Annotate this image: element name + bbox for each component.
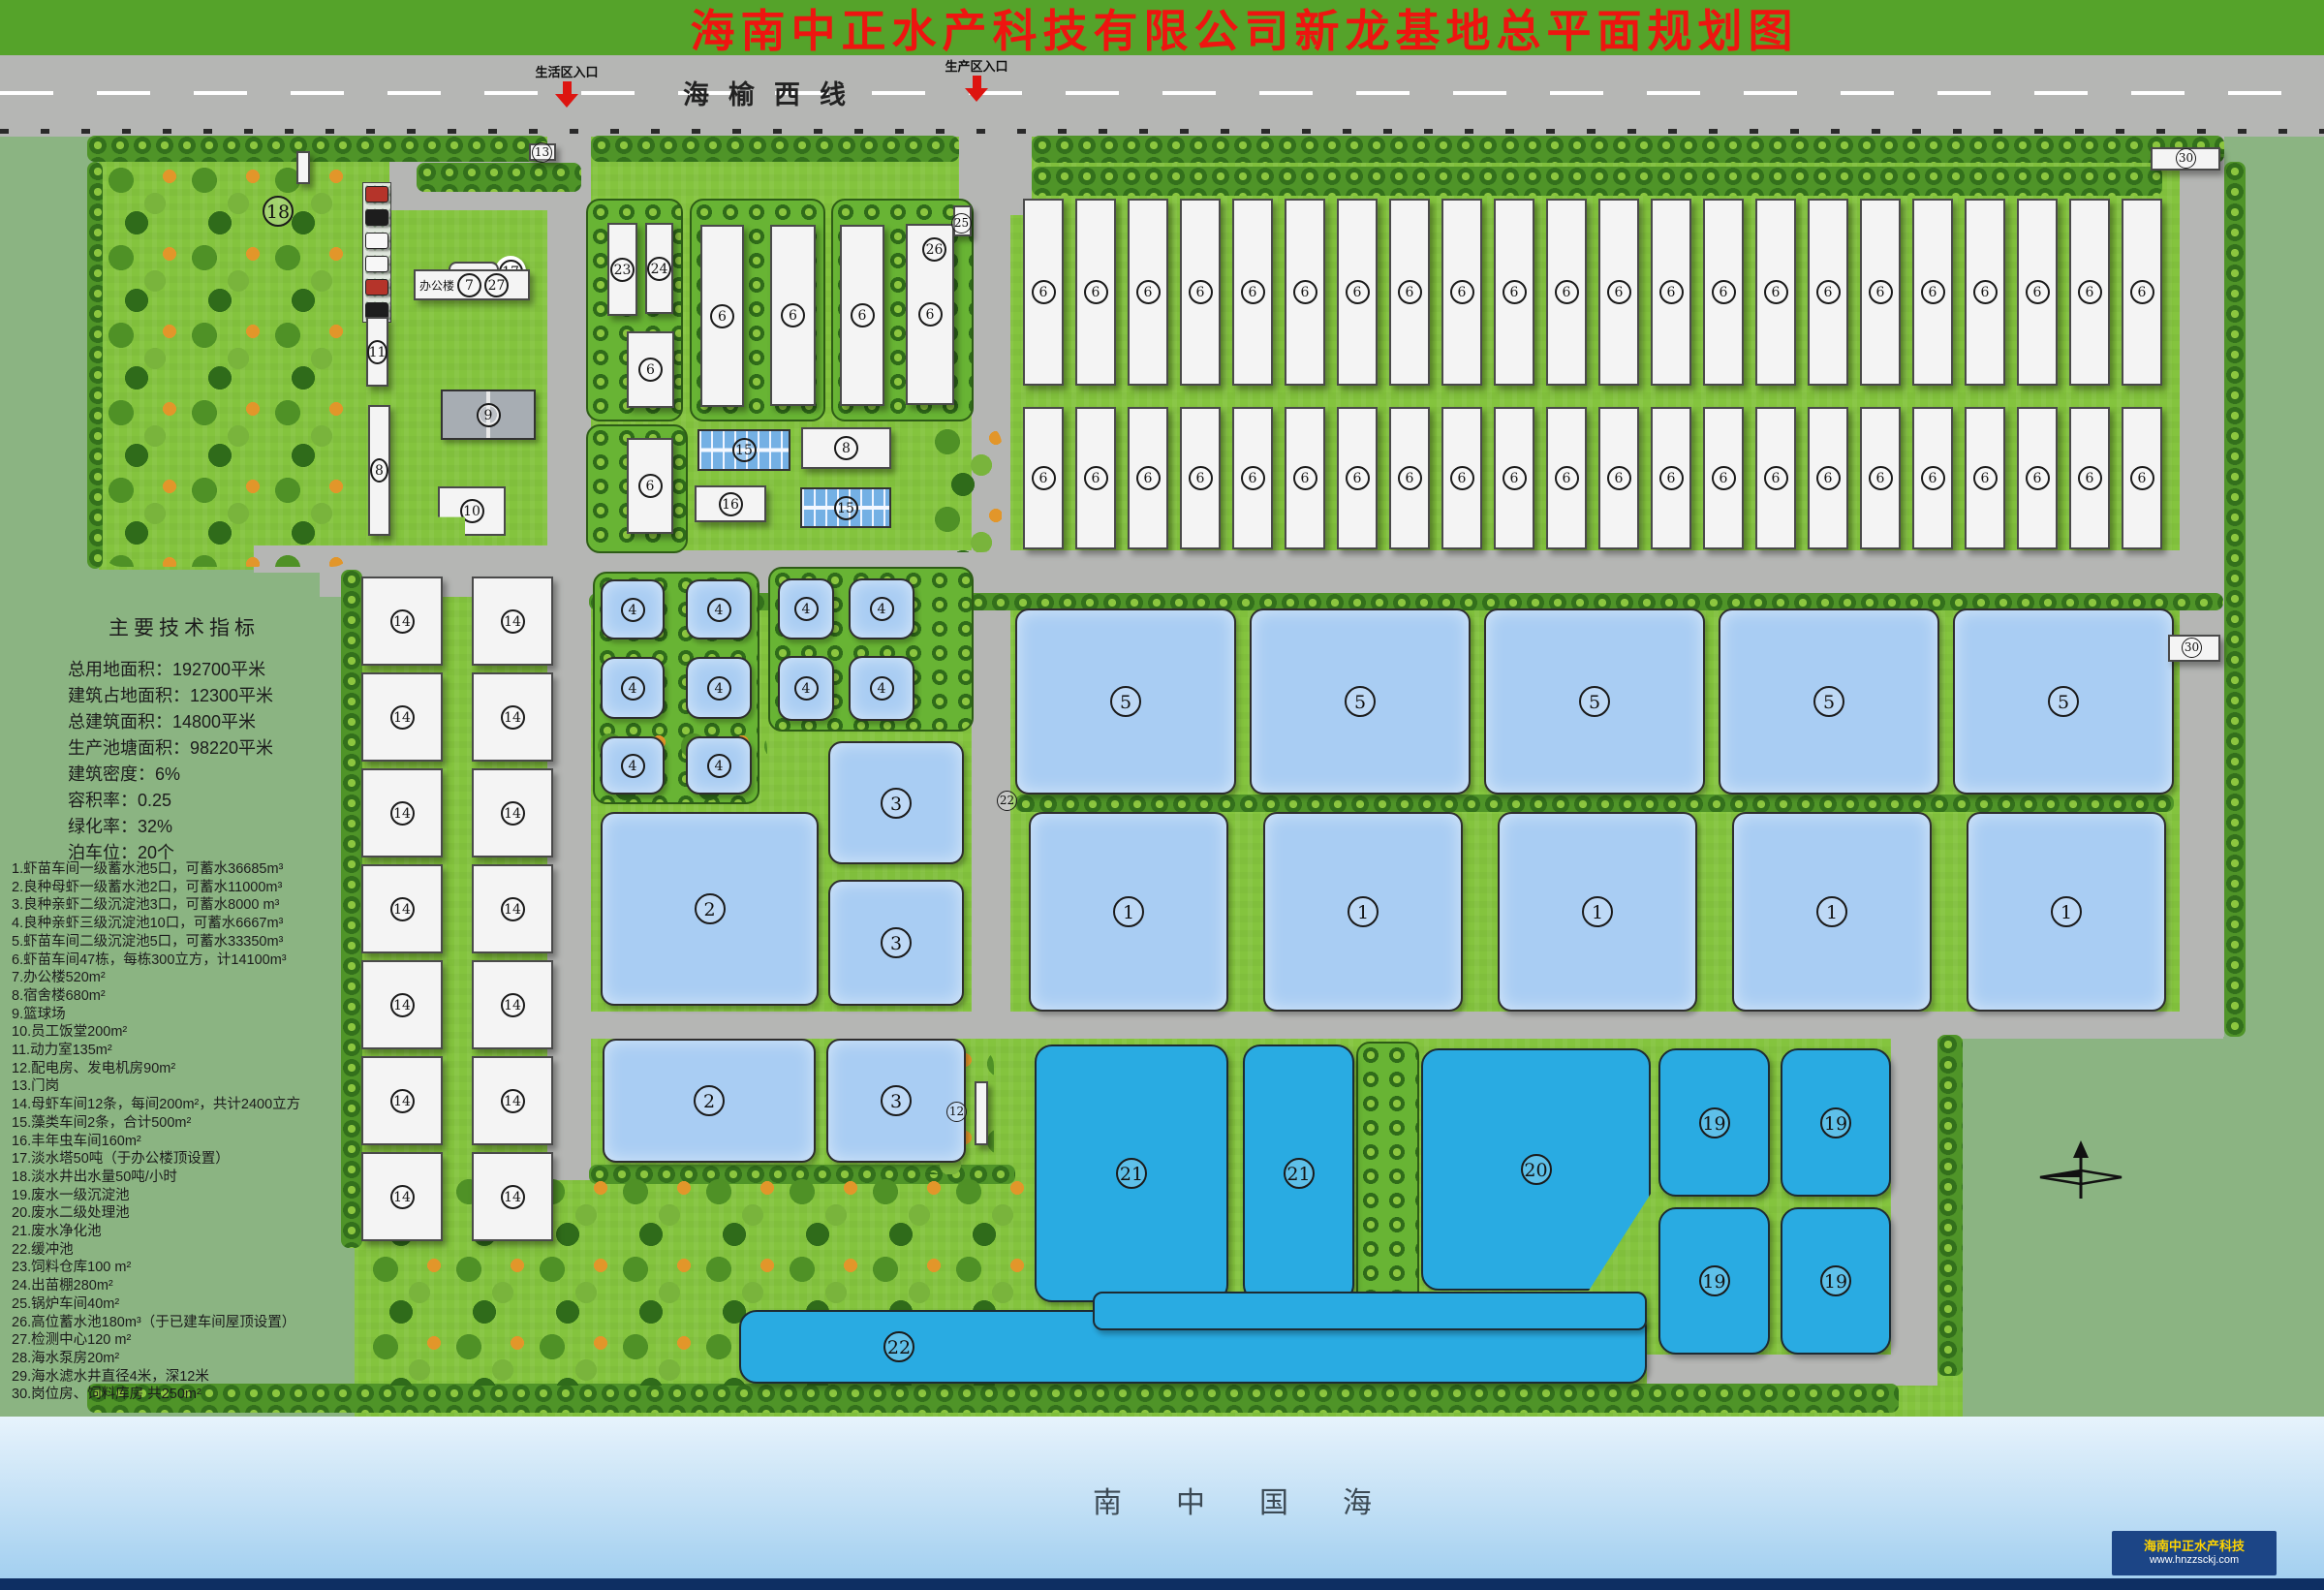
pond-5: 5: [1719, 608, 1939, 795]
shrimp-workshop-6-row2: 6: [1703, 407, 1744, 549]
list-item: 19.废水一级沉淀池: [12, 1187, 353, 1205]
south-boundary-trees: [87, 1384, 1899, 1413]
palm-strip: [928, 424, 1002, 552]
circled-label-8: 8: [370, 458, 388, 483]
top-hedge-west: [87, 136, 547, 162]
circled-label-6: 6: [851, 303, 875, 327]
pond-4: 4: [601, 579, 665, 639]
shrimp-workshop-6-row1: 6: [1598, 199, 1639, 386]
circled-label-6: 6: [1973, 280, 1998, 304]
workshop-6: 6: [700, 225, 744, 407]
pond-3: 3: [826, 1039, 966, 1163]
circled-label-6: 6: [1764, 466, 1788, 490]
circled-label-6: 6: [1921, 466, 1945, 490]
shrimp-workshop-6-row2: 6: [1389, 407, 1430, 549]
shrimp-workshop-6-row1: 6: [2017, 199, 2058, 386]
compass-icon: [2032, 1138, 2129, 1231]
circled-label-21: 21: [1284, 1158, 1315, 1189]
pond-3: 3: [828, 880, 964, 1006]
pond-3: 3: [828, 741, 964, 864]
circled-label-6: 6: [1398, 466, 1422, 490]
workshop-6: 6: [627, 331, 674, 408]
circled-label-13: 13: [532, 142, 552, 163]
circled-label-15: 15: [834, 496, 858, 520]
circled-label-14: 14: [501, 1089, 525, 1113]
circled-label-3: 3: [881, 1085, 912, 1116]
circled-label-2: 2: [695, 893, 726, 924]
southeast-bottom-road: [1647, 1355, 1937, 1386]
circled-label-4: 4: [794, 597, 819, 621]
west-boundary-trees: [87, 162, 103, 569]
circled-label-6: 6: [1712, 280, 1736, 304]
list-item: 容积率：0.25: [68, 788, 339, 814]
pond-2: 2: [601, 812, 819, 1006]
circled-label-8: 8: [834, 436, 858, 460]
marker-25: 25: [951, 213, 972, 234]
workshop-6: 6: [770, 225, 816, 406]
pond-5: 5: [1953, 608, 2174, 795]
production-entrance-label: 生产区入口: [918, 56, 1035, 75]
pond-2: 2: [603, 1039, 816, 1163]
circled-label-6: 6: [1241, 280, 1265, 304]
south-east-west-road: [589, 1012, 2223, 1039]
broodstock-workshop-14: 14: [472, 672, 553, 762]
circled-label-14: 14: [390, 1185, 415, 1209]
circled-label-6: 6: [1084, 466, 1108, 490]
dormitory-8: 8: [368, 405, 390, 536]
living-entrance-label: 生活区入口: [509, 62, 625, 80]
shrimp-workshop-6-row2: 6: [1075, 407, 1116, 549]
pond-4: 4: [849, 656, 914, 721]
shrimp-workshop-6-row2: 6: [1285, 407, 1325, 549]
list-item: 28.海水泵房20m²: [12, 1350, 353, 1368]
central-vertical-road: [972, 211, 1010, 1037]
broodstock-workshop-14: 14: [361, 672, 443, 762]
circled-label-6: 6: [1084, 280, 1108, 304]
southeast-tree-col: [1937, 1035, 1963, 1376]
list-item: 6.虾苗车间47栋，每栋300立方，计14100m³: [12, 951, 353, 970]
list-item: 17.淡水塔50吨（于办公楼顶设置）: [12, 1150, 353, 1169]
southeast-vertical-road: [1891, 1035, 1937, 1376]
feed-store-23: 23: [607, 223, 637, 316]
circled-label-1: 1: [1113, 896, 1144, 927]
circled-label-2: 2: [694, 1085, 725, 1116]
shrimp-workshop-6-row1: 6: [1285, 199, 1325, 386]
marker-30-east: 30: [2182, 638, 2202, 658]
circled-label-14: 14: [501, 897, 525, 921]
office-building-7: 办公楼 7 27: [414, 262, 532, 302]
tree-row-living: [417, 163, 581, 192]
right-vertical-road: [2180, 136, 2224, 1037]
circled-label-4: 4: [870, 676, 894, 701]
arrow-down-icon: [965, 88, 988, 102]
circled-label-15: 15: [732, 438, 757, 462]
list-item: 1.虾苗车间一级蓄水池5口，可蓄水36685m³: [12, 860, 353, 879]
pond-19: 19: [1658, 1048, 1770, 1197]
workshop-6: 6: [840, 225, 884, 406]
circled-label-4: 4: [621, 676, 645, 701]
pond-4: 4: [601, 657, 665, 719]
shrimp-workshop-6-row2: 6: [2122, 407, 2162, 549]
circled-label-6: 6: [1869, 280, 1893, 304]
list-item: 4.良种亲虾三级沉淀池10口，可蓄水6667m³: [12, 915, 353, 933]
site-plan: 海南中正水产科技有限公司新龙基地总平面规划图 44444444443322355…: [0, 0, 2324, 1590]
sea-bottom-bar: [0, 1578, 2324, 1590]
list-item: 24.出苗棚280m²: [12, 1277, 353, 1295]
list-item: 16.丰年虫车间160m²: [12, 1133, 353, 1151]
shrimp-workshop-6-row1: 6: [1808, 199, 1848, 386]
list-item: 10.员工饭堂200m²: [12, 1023, 353, 1042]
circled-label-6: 6: [1189, 466, 1213, 490]
shrimp-workshop-6-row1: 6: [2122, 199, 2162, 386]
dormitory-8b: 8: [801, 427, 891, 469]
circled-label-14: 14: [390, 897, 415, 921]
car-icon: [365, 256, 388, 272]
circled-label-6: 6: [918, 302, 943, 327]
list-item: 2.良种母虾一级蓄水池2口，可蓄水11000m³: [12, 879, 353, 897]
list-item: 生产池塘面积：98220平米: [68, 735, 339, 762]
shrimp-workshop-6-row2: 6: [1912, 407, 1953, 549]
broodstock-workshop-14: 14: [472, 960, 553, 1049]
pond-1: 1: [1732, 812, 1932, 1012]
circled-label-6: 6: [2130, 466, 2154, 490]
shrimp-workshop-6-row1: 6: [1075, 199, 1116, 386]
car-icon: [365, 233, 388, 249]
watermark-company: 海南中正水产科技: [2112, 1536, 2277, 1554]
office-body: 办公楼 7 27: [414, 269, 530, 300]
shrimp-workshop-6-row1: 6: [1912, 199, 1953, 386]
circled-label-5: 5: [1813, 686, 1844, 717]
shrimp-workshop-6-row2: 6: [1023, 407, 1064, 549]
highway-centerline: [0, 91, 2324, 95]
shrimp-workshop-6-row2: 6: [1232, 407, 1273, 549]
list-item: 8.宿舍楼680m²: [12, 987, 353, 1006]
circled-label-4: 4: [621, 598, 645, 622]
circled-label-5: 5: [1110, 686, 1141, 717]
circled-label-4: 4: [707, 754, 731, 778]
circled-label-19: 19: [1820, 1107, 1851, 1138]
sea-name: 南中国海: [1093, 1479, 1426, 1521]
broodstock-workshop-14: 14: [361, 577, 443, 666]
living-entry-road: [547, 136, 591, 1180]
circled-label-14: 14: [390, 1089, 415, 1113]
circled-label-18: 18: [263, 196, 294, 227]
pond-5: 5: [1015, 608, 1236, 795]
generator-12: [975, 1081, 988, 1145]
shrimp-workshop-6-row2: 6: [1546, 407, 1587, 549]
circled-label-3: 3: [881, 927, 912, 958]
circled-label-6: 6: [781, 303, 805, 327]
circled-label-1: 1: [1816, 896, 1847, 927]
circled-label-6: 6: [1659, 466, 1684, 490]
broodstock-workshop-14: 14: [472, 577, 553, 666]
shrimp-workshop-6-row1: 6: [1755, 199, 1796, 386]
shrimp-workshop-6-row1: 6: [1703, 199, 1744, 386]
shrimp-workshop-6-row1: 6: [1023, 199, 1064, 386]
circled-label-22: 22: [883, 1331, 914, 1362]
pond-1: 1: [1263, 812, 1463, 1012]
circled-label-6: 6: [1450, 466, 1474, 490]
shrimp-workshop-6-row2: 6: [2069, 407, 2110, 549]
circled-label-4: 4: [707, 676, 731, 701]
brine-shrimp-16: 16: [695, 485, 766, 522]
shrimp-workshop-6-row1: 6: [2069, 199, 2110, 386]
tree-row-east: [1032, 167, 2162, 196]
marker-18: 18: [262, 195, 294, 228]
shrimp-workshop-6-row2: 6: [1755, 407, 1796, 549]
circled-label-20: 20: [1521, 1154, 1552, 1185]
circled-label-6: 6: [638, 358, 663, 382]
broodstock-workshop-14: 14: [361, 864, 443, 953]
circled-label-19: 19: [1820, 1265, 1851, 1296]
circled-label-6: 6: [1032, 466, 1056, 490]
circled-label-1: 1: [2051, 896, 2082, 927]
list-item: 绿化率：32%: [68, 814, 339, 840]
shrimp-workshop-6-row1: 6: [1337, 199, 1378, 386]
broodstock-workshop-14: 14: [361, 960, 443, 1049]
circled-label-12: 12: [946, 1102, 967, 1122]
broodstock-workshop-14: 14: [472, 1152, 553, 1241]
pond-5: 5: [1484, 608, 1705, 795]
shrimp-workshop-6-row2: 6: [1337, 407, 1378, 549]
circled-label-6: 6: [1607, 466, 1631, 490]
list-item: 7.办公楼520m²: [12, 969, 353, 987]
circled-label-14: 14: [501, 705, 525, 730]
circled-label-6: 6: [1032, 280, 1056, 304]
seedling-shed-24: 24: [645, 223, 673, 314]
marker-12: 12: [946, 1102, 967, 1122]
shrimp-workshop-6-row1: 6: [1389, 199, 1430, 386]
circled-label-6: 6: [2026, 280, 2050, 304]
shrimp-workshop-6-row2: 6: [1651, 407, 1691, 549]
legend-panel: 1.虾苗车间一级蓄水池5口，可蓄水36685m³2.良种母虾一级蓄水池2口，可蓄…: [12, 860, 353, 1404]
algae-workshop-15: 15: [800, 487, 891, 528]
marker-22-junction: 22: [997, 791, 1017, 811]
marker-27: 27: [484, 273, 509, 297]
circled-label-9: 9: [477, 403, 501, 427]
circled-label-6: 6: [1136, 280, 1161, 304]
circled-label-6: 6: [1346, 466, 1370, 490]
car-icon: [365, 279, 388, 296]
circled-label-1: 1: [1582, 896, 1613, 927]
shrimp-workshop-6-row1: 6: [1546, 199, 1587, 386]
circled-label-22: 22: [997, 791, 1017, 811]
circled-label-26: 26: [922, 237, 946, 262]
list-item: 5.虾苗车间二级沉淀池5口，可蓄水33350m³: [12, 933, 353, 951]
circled-label-5: 5: [1579, 686, 1610, 717]
parking-strip: [362, 182, 391, 323]
circled-label-14: 14: [390, 801, 415, 826]
circled-label-6: 6: [1555, 466, 1579, 490]
circled-label-6: 6: [2078, 280, 2102, 304]
circled-label-4: 4: [621, 754, 645, 778]
pond-19: 19: [1781, 1207, 1891, 1355]
circled-label-6: 6: [2078, 466, 2102, 490]
shrimp-workshop-6-row2: 6: [1965, 407, 2005, 549]
list-item: 23.饲料仓库100 m²: [12, 1259, 353, 1277]
list-item: 11.动力室135m²: [12, 1042, 353, 1060]
list-item: 3.良种亲虾二级沉淀池3口，可蓄水8000 m³: [12, 896, 353, 915]
list-item: 21.废水净化池: [12, 1223, 353, 1241]
car-icon: [365, 186, 388, 203]
circled-label-16: 16: [719, 492, 743, 516]
circled-label-6: 6: [1346, 280, 1370, 304]
watermark: 海南中正水产科技 www.hnzzsckj.com: [2112, 1531, 2277, 1575]
circled-label-6: 6: [1503, 466, 1527, 490]
marker-22-pond: 22: [883, 1330, 915, 1363]
basketball-court-9: 9: [441, 390, 536, 440]
shrimp-workshop-6-row1: 6: [1965, 199, 2005, 386]
circled-label-6: 6: [1293, 280, 1317, 304]
production-entrance: 生产区入口: [918, 56, 1035, 102]
top-hedge-mid: [591, 136, 959, 162]
circled-label-14: 14: [501, 993, 525, 1017]
list-item: 29.海水滤水井直径4米，深12米: [12, 1368, 353, 1387]
list-item: 25.锅炉车间40m²: [12, 1295, 353, 1314]
circled-label-30: 30: [2176, 148, 2196, 169]
circled-label-4: 4: [794, 676, 819, 701]
circled-label-6: 6: [1869, 466, 1893, 490]
circled-label-14: 14: [501, 1185, 525, 1209]
list-item: 9.篮球场: [12, 1006, 353, 1024]
broodstock-workshop-14: 14: [472, 768, 553, 857]
broodstock-workshop-14: 14: [472, 1056, 553, 1145]
broodstock-workshop-14: 14: [361, 1056, 443, 1145]
circled-label-19: 19: [1699, 1107, 1730, 1138]
circled-label-6: 6: [1503, 280, 1527, 304]
list-item: 总建筑面积：14800平米: [68, 709, 339, 735]
list-item: 15.藻类车间2条，合计500m²: [12, 1114, 353, 1133]
circled-label-6: 6: [1398, 280, 1422, 304]
circled-label-6: 6: [1136, 466, 1161, 490]
circled-label-6: 6: [1712, 466, 1736, 490]
broodstock-workshop-14: 14: [361, 768, 443, 857]
circled-label-6: 6: [1293, 466, 1317, 490]
circled-label-25: 25: [951, 213, 972, 234]
technical-indicators-panel: 主要技术指标 总用地面积：192700平米建筑占地面积：12300平米总建筑面积…: [68, 612, 339, 866]
list-item: 27.检测中心120 m²: [12, 1331, 353, 1350]
shrimp-workshop-6-row2: 6: [2017, 407, 2058, 549]
circled-label-6: 6: [1973, 466, 1998, 490]
list-item: 20.废水二级处理池: [12, 1204, 353, 1223]
top-hedge-east: [1032, 136, 2224, 163]
circled-label-21: 21: [1116, 1158, 1147, 1189]
arrow-down-icon: [563, 81, 572, 94]
shrimp-workshop-6-row2: 6: [1808, 407, 1848, 549]
title-bar: 海南中正水产科技有限公司新龙基地总平面规划图: [0, 0, 2324, 55]
circled-label-6: 6: [1816, 280, 1841, 304]
shrimp-workshop-6-row1: 6: [1128, 199, 1168, 386]
circled-label-1: 1: [1348, 896, 1379, 927]
pond-1: 1: [1967, 812, 2166, 1012]
circled-label-6: 6: [2130, 280, 2154, 304]
shrimp-workshop-6-row1: 6: [1860, 199, 1901, 386]
arrow-down-icon: [555, 94, 578, 108]
circled-label-6: 6: [710, 304, 734, 328]
circled-label-6: 6: [1921, 280, 1945, 304]
shrimp-workshop-6-row1: 6: [1441, 199, 1482, 386]
pond-4: 4: [849, 578, 914, 639]
list-item: 12.配电房、发电机房90m²: [12, 1060, 353, 1078]
circled-label-6: 6: [1659, 280, 1684, 304]
shrimp-workshop-6-row1: 6: [1651, 199, 1691, 386]
circled-label-5: 5: [2048, 686, 2079, 717]
highway-edge-ticks: [0, 129, 2324, 134]
pond-1: 1: [1029, 812, 1228, 1012]
circled-label-14: 14: [390, 609, 415, 634]
shrimp-workshop-6-row1: 6: [1232, 199, 1273, 386]
arrow-down-icon: [973, 76, 981, 88]
broodstock-workshop-14: 14: [361, 1152, 443, 1241]
circled-label-30: 30: [2182, 638, 2202, 658]
marker-30-top: 30: [2176, 148, 2196, 169]
shrimp-workshop-6-row2: 6: [1860, 407, 1901, 549]
circled-label-24: 24: [647, 257, 671, 281]
list-item: 18.淡水井出水量50吨/小时: [12, 1169, 353, 1187]
pond-21: 21: [1035, 1044, 1228, 1302]
workshop-6: 6: [627, 438, 673, 534]
circled-label-6: 6: [2026, 466, 2050, 490]
circled-label-4: 4: [870, 597, 894, 621]
east-boundary-trees: [2224, 162, 2246, 1037]
list-item: 建筑占地面积：12300平米: [68, 683, 339, 709]
offsite-left-top: [0, 136, 99, 570]
car-icon: [365, 209, 388, 226]
pond-19: 19: [1781, 1048, 1891, 1197]
marker-26: 26: [922, 237, 946, 262]
pond-19: 19: [1658, 1207, 1770, 1355]
circled-label-4: 4: [707, 598, 731, 622]
circled-label-6: 6: [1816, 466, 1841, 490]
circled-label-6: 6: [1555, 280, 1579, 304]
highway-name: 海榆西线: [683, 74, 865, 111]
highway: [0, 55, 2324, 137]
circled-label-11: 11: [367, 340, 388, 364]
pond-row-hedge-mid: [1015, 795, 2174, 812]
list-item: 26.高位蓄水池180m³（于已建车间屋顶设置）: [12, 1314, 353, 1332]
shrimp-workshop-6-row1: 6: [1494, 199, 1534, 386]
circled-label-6: 6: [1607, 280, 1631, 304]
shrimp-workshop-6-row2: 6: [1441, 407, 1482, 549]
office-label: 办公楼: [419, 277, 454, 294]
watermark-url: www.hnzzsckj.com: [2112, 1554, 2277, 1566]
circled-label-23: 23: [610, 258, 635, 282]
pond-4: 4: [778, 656, 834, 721]
shrimp-workshop-6-row1: 6: [1180, 199, 1221, 386]
living-entrance: 生活区入口: [509, 62, 625, 108]
pond-4: 4: [778, 578, 834, 639]
circled-label-19: 19: [1699, 1265, 1730, 1296]
list-item: 22.缓冲池: [12, 1241, 353, 1260]
list-item: 14.母虾车间12条，每间200m²，共计2400立方: [12, 1096, 353, 1114]
list-item: 建筑密度：6%: [68, 762, 339, 788]
gate-post: [296, 151, 310, 184]
page-title: 海南中正水产科技有限公司新龙基地总平面规划图: [526, 0, 1799, 60]
list-item: 总用地面积：192700平米: [68, 657, 339, 683]
indicators-list: 总用地面积：192700平米建筑占地面积：12300平米总建筑面积：14800平…: [68, 657, 339, 866]
shrimp-workshop-6-row2: 6: [1180, 407, 1221, 549]
pond-22-ext: [1093, 1292, 1647, 1330]
pond-4: 4: [686, 736, 752, 795]
circled-label-6: 6: [1450, 280, 1474, 304]
broodstock-workshop-14: 14: [472, 864, 553, 953]
pond-21: 21: [1243, 1044, 1354, 1302]
car-icon: [365, 302, 388, 319]
shrimp-workshop-6-row2: 6: [1494, 407, 1534, 549]
circled-label-14: 14: [390, 705, 415, 730]
pond-5: 5: [1250, 608, 1471, 795]
circled-label-3: 3: [881, 788, 912, 819]
